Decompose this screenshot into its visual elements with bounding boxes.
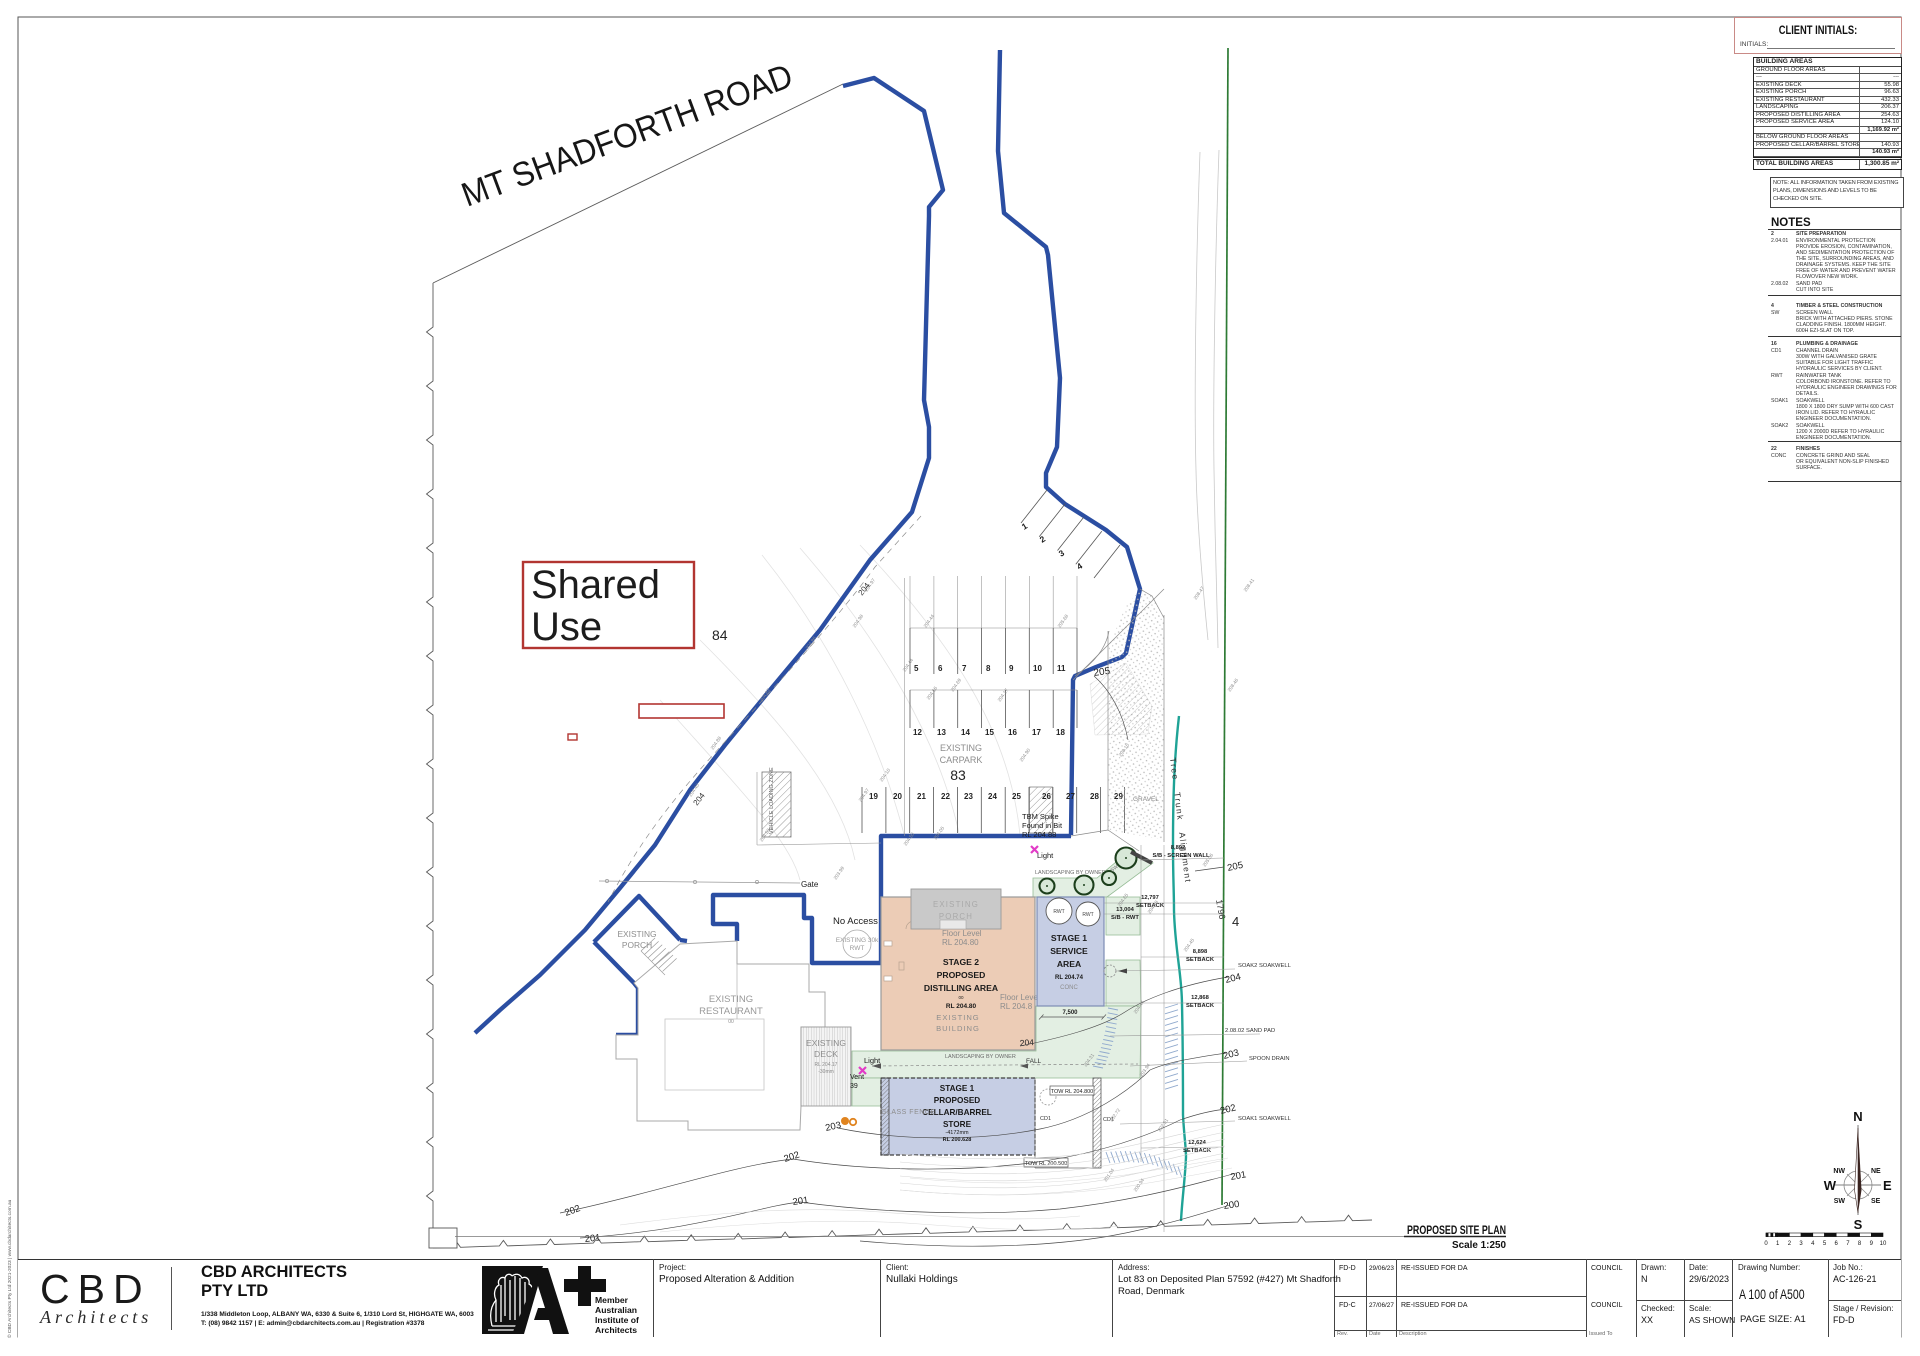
svg-text:PORCH: PORCH — [939, 912, 973, 921]
svg-text:22: 22 — [941, 792, 950, 801]
svg-text:10: 10 — [1033, 664, 1042, 673]
svg-text:PROPOSED SITE PLAN: PROPOSED SITE PLAN — [1407, 1223, 1506, 1237]
svg-text:204: 204 — [1224, 971, 1242, 986]
svg-text:TOW RL 204.800: TOW RL 204.800 — [1051, 1089, 1094, 1095]
svg-text:15: 15 — [985, 728, 994, 737]
svg-text:RWT: RWT — [850, 945, 865, 952]
svg-text:-4172mm: -4172mm — [945, 1130, 969, 1136]
svg-text:203: 203 — [824, 1120, 842, 1134]
svg-text:N: N — [1853, 1109, 1862, 1124]
svg-text:204.66: 204.66 — [926, 685, 940, 701]
svg-text:EXISTING: EXISTING — [936, 1013, 979, 1022]
svg-text:203: 203 — [1222, 1047, 1240, 1062]
svg-text:RWT: RWT — [1053, 909, 1064, 915]
svg-text:SETBACK: SETBACK — [1186, 1003, 1215, 1009]
svg-text:205: 205 — [1226, 860, 1244, 874]
svg-text:STAGE 2: STAGE 2 — [943, 957, 979, 967]
svg-text:204.10: 204.10 — [879, 767, 893, 783]
svg-text:PORCH: PORCH — [622, 940, 652, 950]
svg-text:DISTILLING AREA: DISTILLING AREA — [924, 983, 998, 993]
svg-text:SOAK1 SOAKWELL: SOAK1 SOAKWELL — [1238, 1116, 1292, 1122]
svg-text:39: 39 — [850, 1083, 858, 1090]
svg-text:208.46: 208.46 — [1227, 677, 1241, 693]
svg-text:24: 24 — [988, 792, 997, 801]
svg-text:204: 204 — [1019, 1037, 1034, 1048]
svg-text:-30mm: -30mm — [818, 1069, 834, 1075]
svg-text:EXISTING 30k: EXISTING 30k — [836, 937, 879, 944]
svg-text:AREA: AREA — [1057, 959, 1081, 969]
svg-text:202: 202 — [1219, 1102, 1237, 1117]
svg-text:4: 4 — [1811, 1241, 1815, 1247]
svg-text:00: 00 — [728, 1019, 734, 1025]
svg-text:GRAVEL: GRAVEL — [1133, 796, 1159, 803]
svg-text:S: S — [1854, 1217, 1863, 1232]
svg-text:S/B - SCREEN WALL: S/B - SCREEN WALL — [1152, 853, 1209, 859]
svg-text:5: 5 — [914, 664, 919, 673]
svg-text:PROPOSED: PROPOSED — [934, 1096, 980, 1105]
svg-text:SOAK2 SOAKWELL: SOAK2 SOAKWELL — [1238, 963, 1292, 969]
svg-text:0: 0 — [1764, 1241, 1768, 1247]
svg-text:20: 20 — [893, 792, 902, 801]
svg-text:1: 1 — [1020, 521, 1030, 532]
svg-text:16: 16 — [1008, 728, 1017, 737]
svg-text:Light: Light — [1037, 851, 1054, 860]
svg-text:E: E — [1883, 1178, 1892, 1193]
svg-text:SERVICE: SERVICE — [1050, 946, 1088, 956]
svg-text:21: 21 — [917, 792, 926, 801]
svg-text:4: 4 — [1232, 914, 1239, 929]
svg-text:14: 14 — [961, 728, 970, 737]
svg-text:201: 201 — [584, 1232, 601, 1245]
svg-text:Gate: Gate — [801, 880, 819, 889]
svg-text:8,898: 8,898 — [1193, 949, 1208, 955]
svg-text:204.90: 204.90 — [1019, 747, 1033, 763]
svg-text:Vent: Vent — [850, 1074, 864, 1081]
svg-text:RL 204.74: RL 204.74 — [1055, 975, 1084, 981]
svg-text:17: 17 — [1032, 728, 1041, 737]
svg-text:No Access: No Access — [833, 916, 878, 927]
svg-text:LANDSCAPING BY OWNER: LANDSCAPING BY OWNER — [1035, 870, 1106, 876]
svg-text:7: 7 — [962, 664, 967, 673]
svg-text:BUILDING: BUILDING — [936, 1024, 980, 1033]
svg-text:MT SHADFORTH ROAD: MT SHADFORTH ROAD — [457, 57, 798, 215]
svg-text:1796: 1796 — [1214, 899, 1227, 920]
svg-text:205.68: 205.68 — [1057, 613, 1071, 629]
svg-text:9: 9 — [1870, 1241, 1874, 1247]
svg-text:204.44: 204.44 — [923, 613, 937, 629]
svg-text:83: 83 — [950, 767, 966, 783]
svg-text:202.72: 202.72 — [1109, 1107, 1123, 1123]
svg-text:13,004: 13,004 — [1116, 907, 1135, 913]
svg-text:RL 204.17: RL 204.17 — [815, 1062, 838, 1068]
svg-text:GLASS FENCE: GLASS FENCE — [881, 1109, 936, 1116]
svg-text:204.69: 204.69 — [950, 677, 964, 693]
svg-text:6: 6 — [1835, 1241, 1839, 1247]
svg-text:7: 7 — [1846, 1241, 1850, 1247]
svg-text:RESTAURANT: RESTAURANT — [699, 1006, 763, 1017]
svg-text:2.08.02 SAND PAD: 2.08.02 SAND PAD — [1225, 1028, 1275, 1034]
svg-text:204.05: 204.05 — [933, 825, 947, 841]
svg-text:8: 8 — [986, 664, 991, 673]
svg-text:SETBACK: SETBACK — [1186, 957, 1215, 963]
svg-text:CD1: CD1 — [1040, 1116, 1051, 1122]
svg-text:RWT: RWT — [1082, 912, 1093, 918]
svg-text:203.99: 203.99 — [833, 865, 847, 881]
svg-text:1: 1 — [1776, 1241, 1780, 1247]
svg-text:CARPARK: CARPARK — [940, 755, 983, 765]
svg-text:8,892: 8,892 — [1171, 845, 1186, 851]
svg-text:3: 3 — [1057, 548, 1067, 559]
svg-text:RL 204.80: RL 204.80 — [946, 1003, 977, 1010]
svg-text:SPOON DRAIN: SPOON DRAIN — [1249, 1056, 1290, 1062]
svg-text:200: 200 — [1223, 1199, 1240, 1212]
svg-text:VEHICLE LOADING ZONE: VEHICLE LOADING ZONE — [769, 767, 775, 834]
svg-text:23: 23 — [964, 792, 973, 801]
svg-text:6: 6 — [938, 664, 943, 673]
svg-text:RL 204.8: RL 204.8 — [1000, 1002, 1033, 1011]
svg-text:2: 2 — [1788, 1241, 1792, 1247]
svg-text:Use: Use — [531, 605, 602, 649]
svg-text:DECK: DECK — [814, 1049, 838, 1059]
svg-text:Light: Light — [864, 1056, 881, 1065]
svg-text:2: 2 — [1038, 534, 1048, 545]
svg-text:00: 00 — [958, 995, 964, 1000]
svg-text:S/B - RWT: S/B - RWT — [1111, 915, 1139, 921]
svg-text:208.41: 208.41 — [1243, 577, 1257, 593]
svg-text:SW: SW — [1834, 1198, 1846, 1205]
svg-text:STORE: STORE — [943, 1120, 972, 1129]
svg-text:Shared: Shared — [531, 563, 660, 607]
svg-text:84: 84 — [712, 627, 728, 643]
svg-text:13: 13 — [937, 728, 946, 737]
svg-text:Architects: Architects — [595, 1325, 637, 1334]
svg-text:LANDSCAPING BY OWNER: LANDSCAPING BY OWNER — [945, 1054, 1016, 1060]
svg-text:CONC: CONC — [1060, 985, 1078, 991]
svg-text:12,868: 12,868 — [1191, 995, 1210, 1001]
svg-text:12,797: 12,797 — [1141, 895, 1159, 901]
svg-text:9: 9 — [1009, 664, 1014, 673]
svg-text:W: W — [1824, 1178, 1837, 1193]
svg-text:FALL: FALL — [1026, 1058, 1042, 1065]
svg-text:5: 5 — [1823, 1241, 1827, 1247]
svg-text:EXISTING: EXISTING — [617, 929, 656, 939]
svg-text:EXISTING: EXISTING — [940, 743, 982, 753]
svg-text:Scale 1:250: Scale 1:250 — [1452, 1239, 1506, 1251]
svg-text:TBM Spike: TBM Spike — [1022, 812, 1059, 821]
svg-text:NE: NE — [1871, 1168, 1881, 1175]
svg-text:201.04: 201.04 — [1103, 1167, 1117, 1183]
svg-text:SETBACK: SETBACK — [1183, 1148, 1212, 1154]
svg-text:SE: SE — [1871, 1198, 1881, 1205]
svg-text:EXISTING: EXISTING — [806, 1038, 846, 1048]
svg-text:10: 10 — [1880, 1241, 1887, 1247]
svg-text:Tree Trunk Alignment: Tree Trunk Alignment — [1168, 757, 1193, 884]
svg-text:25: 25 — [1012, 792, 1021, 801]
svg-text:202: 202 — [783, 1149, 801, 1164]
svg-text:Member: Member — [595, 1295, 629, 1305]
svg-text:201: 201 — [792, 1195, 809, 1208]
svg-text:RL 204.88: RL 204.88 — [1022, 830, 1056, 839]
svg-text:EXISTING: EXISTING — [709, 994, 753, 1005]
svg-text:202: 202 — [563, 1203, 582, 1219]
svg-text:3: 3 — [1799, 1241, 1803, 1247]
svg-text:28: 28 — [1090, 792, 1099, 801]
svg-text:4: 4 — [1075, 561, 1085, 572]
svg-text:Floor Level: Floor Level — [1000, 993, 1040, 1002]
svg-text:Floor Level: Floor Level — [942, 929, 982, 938]
svg-text:NW: NW — [1833, 1168, 1845, 1175]
svg-text:18: 18 — [1056, 728, 1065, 737]
svg-text:STAGE 1: STAGE 1 — [1051, 933, 1087, 943]
svg-text:201: 201 — [1230, 1169, 1248, 1183]
svg-text:12: 12 — [913, 728, 922, 737]
svg-text:8: 8 — [1858, 1241, 1862, 1247]
svg-text:Found in Bit: Found in Bit — [1022, 821, 1063, 830]
svg-text:7,500: 7,500 — [1062, 1010, 1078, 1016]
svg-text:11: 11 — [1057, 664, 1066, 673]
svg-text:19: 19 — [869, 792, 878, 801]
svg-text:PROPOSED: PROPOSED — [937, 970, 986, 980]
svg-text:27: 27 — [1066, 792, 1075, 801]
svg-text:RL 204.80: RL 204.80 — [942, 938, 979, 947]
svg-text:Institute of: Institute of — [595, 1315, 639, 1325]
svg-text:Australian: Australian — [595, 1305, 637, 1315]
svg-text:STAGE 1: STAGE 1 — [940, 1084, 975, 1093]
svg-text:EXISTING: EXISTING — [933, 900, 979, 909]
